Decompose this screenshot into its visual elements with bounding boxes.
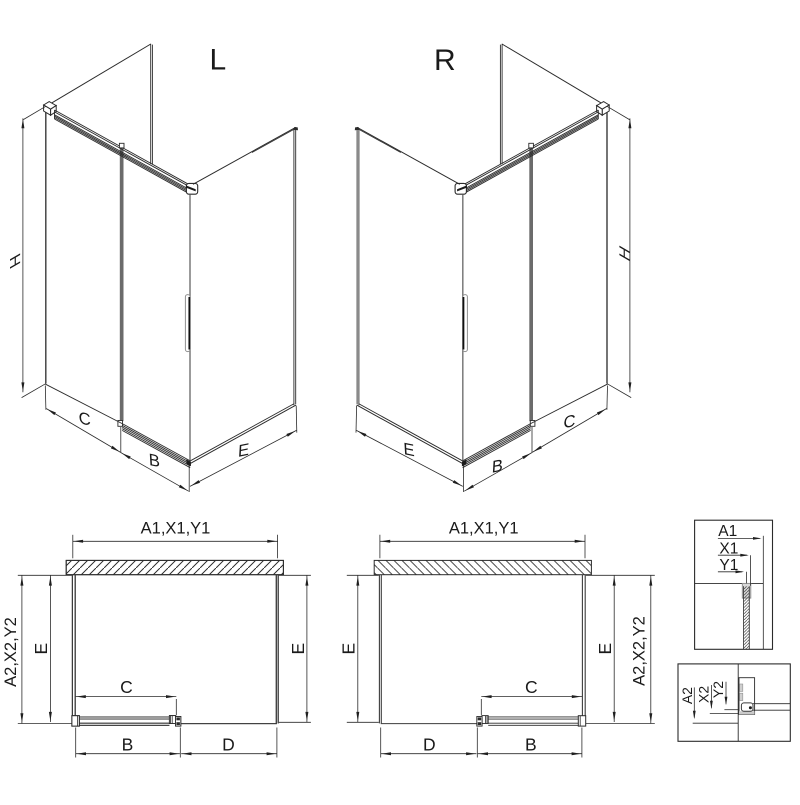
svg-text:R: R [434, 44, 456, 77]
svg-text:C: C [563, 411, 576, 432]
svg-text:A1: A1 [718, 523, 737, 540]
svg-text:E: E [31, 643, 51, 655]
svg-text:C: C [525, 677, 538, 697]
svg-text:C: C [120, 677, 133, 697]
svg-text:E: E [288, 643, 308, 655]
svg-text:B: B [491, 456, 503, 477]
svg-text:A2,X2,Y2: A2,X2,Y2 [2, 617, 20, 687]
svg-text:A1,X1,Y1: A1,X1,Y1 [141, 520, 211, 538]
svg-text:B: B [148, 450, 160, 471]
svg-text:A2: A2 [679, 687, 695, 704]
svg-text:E: E [338, 643, 358, 655]
svg-text:D: D [423, 734, 436, 754]
svg-text:L: L [210, 44, 227, 77]
svg-text:B: B [525, 735, 537, 755]
svg-text:Y2: Y2 [710, 681, 726, 698]
svg-text:X1: X1 [719, 540, 738, 557]
svg-text:C: C [78, 408, 91, 429]
svg-text:E: E [595, 643, 615, 655]
svg-text:B: B [122, 735, 134, 755]
svg-text:A2,X2,Y2: A2,X2,Y2 [630, 616, 648, 686]
svg-text:X2: X2 [696, 686, 712, 703]
svg-text:E: E [238, 440, 250, 461]
svg-text:E: E [403, 439, 415, 460]
svg-text:A1,X1,Y1: A1,X1,Y1 [449, 520, 519, 538]
svg-text:D: D [222, 734, 235, 754]
